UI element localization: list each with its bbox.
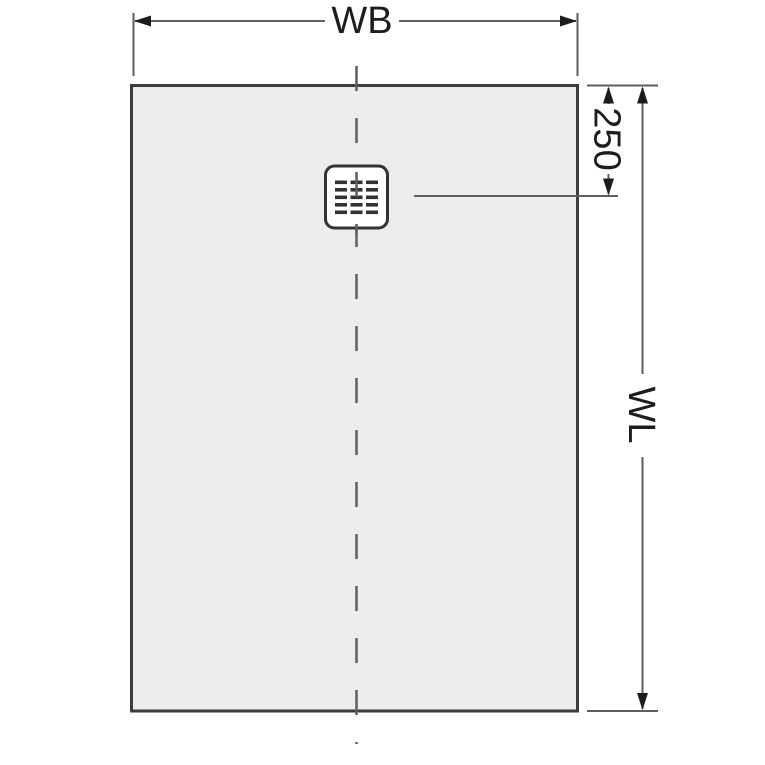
arrow-left-icon <box>134 16 151 27</box>
dimension-width: WB <box>134 0 578 76</box>
width-label: WB <box>331 0 392 42</box>
drawing-canvas: WB <box>0 0 765 765</box>
arrow-down-icon <box>603 179 614 196</box>
arrow-right-icon <box>560 16 577 27</box>
drain-offset-label: 250 <box>586 107 628 170</box>
arrow-up-icon <box>603 87 614 104</box>
arrow-down-icon <box>637 693 648 710</box>
dimension-drain-offset: 250 <box>586 87 628 196</box>
drain-icon <box>326 160 388 234</box>
arrow-up-icon <box>637 87 648 104</box>
dimension-length: WL <box>620 87 662 711</box>
dimension-drawing: WB <box>0 0 765 765</box>
length-label: WL <box>620 387 662 444</box>
